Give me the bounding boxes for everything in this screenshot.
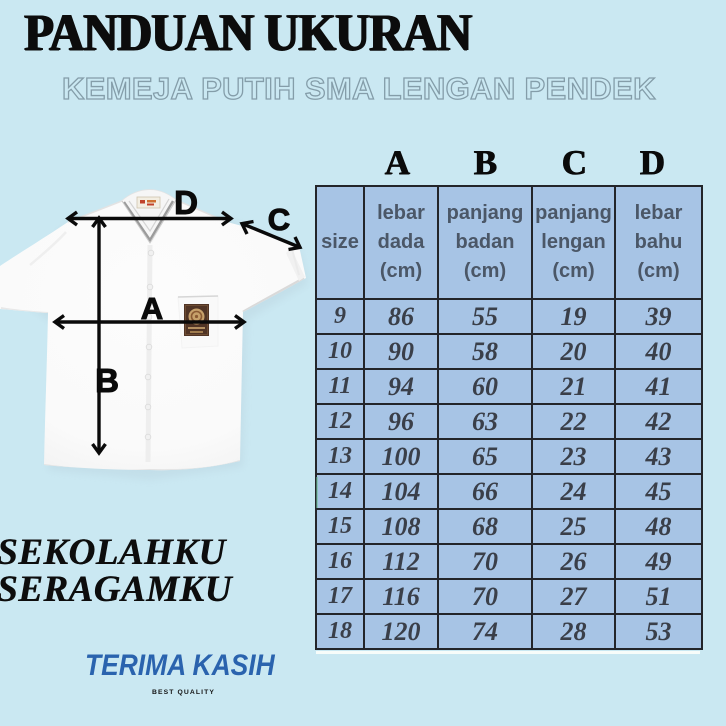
svg-text:C: C: [268, 202, 290, 237]
svg-text:A: A: [141, 291, 163, 326]
svg-text:D: D: [174, 184, 198, 221]
svg-text:B: B: [95, 362, 119, 399]
